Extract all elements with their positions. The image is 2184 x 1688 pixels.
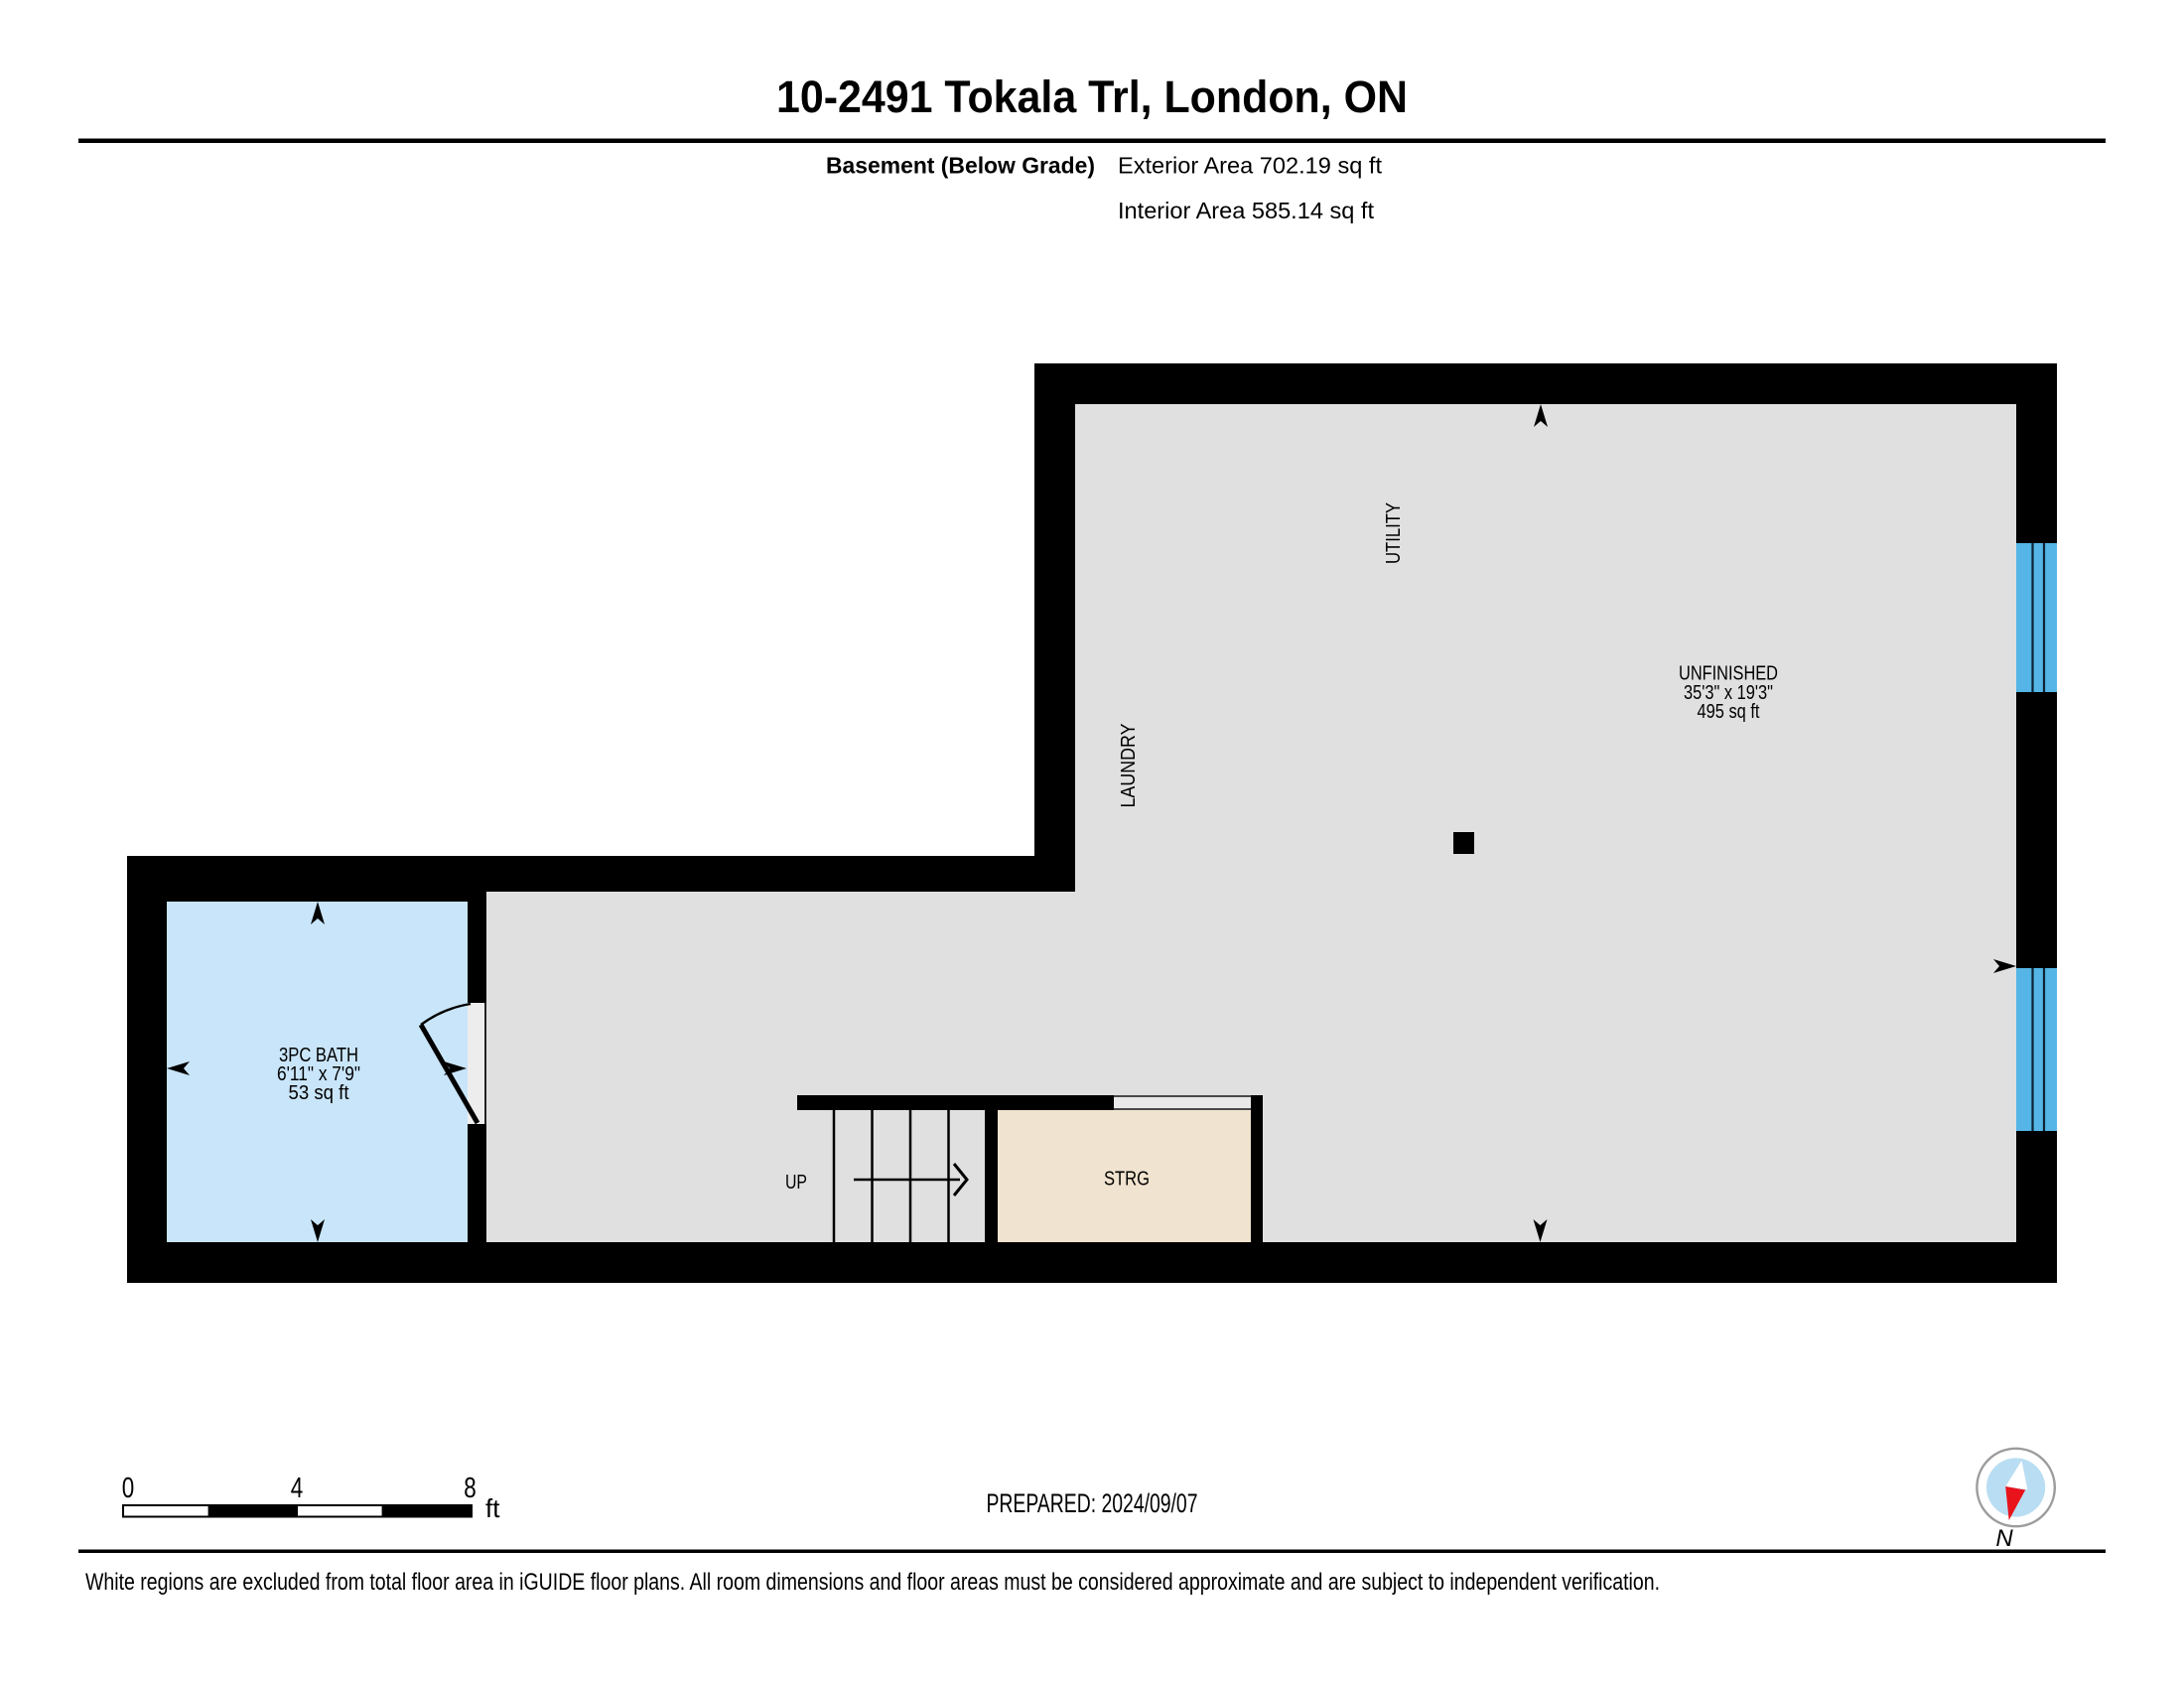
svg-text:PREPARED: 2024/09/07: PREPARED: 2024/09/07 (987, 1488, 1198, 1518)
svg-text:Interior Area 585.14 sq ft: Interior Area 585.14 sq ft (1118, 198, 1374, 223)
svg-text:8: 8 (464, 1473, 477, 1504)
svg-text:53 sq ft: 53 sq ft (289, 1082, 349, 1104)
svg-text:White regions are excluded fro: White regions are excluded from total fl… (85, 1569, 1660, 1596)
svg-text:495 sq ft: 495 sq ft (1698, 701, 1760, 723)
svg-text:Basement (Below Grade): Basement (Below Grade) (826, 153, 1095, 179)
svg-text:ft: ft (485, 1493, 500, 1523)
svg-text:STRG: STRG (1104, 1169, 1150, 1191)
svg-text:UP: UP (785, 1172, 807, 1194)
svg-text:0: 0 (122, 1473, 135, 1504)
svg-text:4: 4 (291, 1473, 304, 1504)
svg-text:N: N (1995, 1525, 2013, 1552)
svg-text:10-2491 Tokala Trl, London, ON: 10-2491 Tokala Trl, London, ON (776, 71, 1408, 122)
svg-text:Exterior Area 702.19 sq ft: Exterior Area 702.19 sq ft (1118, 153, 1382, 179)
svg-text:LAUNDRY: LAUNDRY (1118, 724, 1140, 808)
svg-text:UTILITY: UTILITY (1383, 502, 1405, 564)
